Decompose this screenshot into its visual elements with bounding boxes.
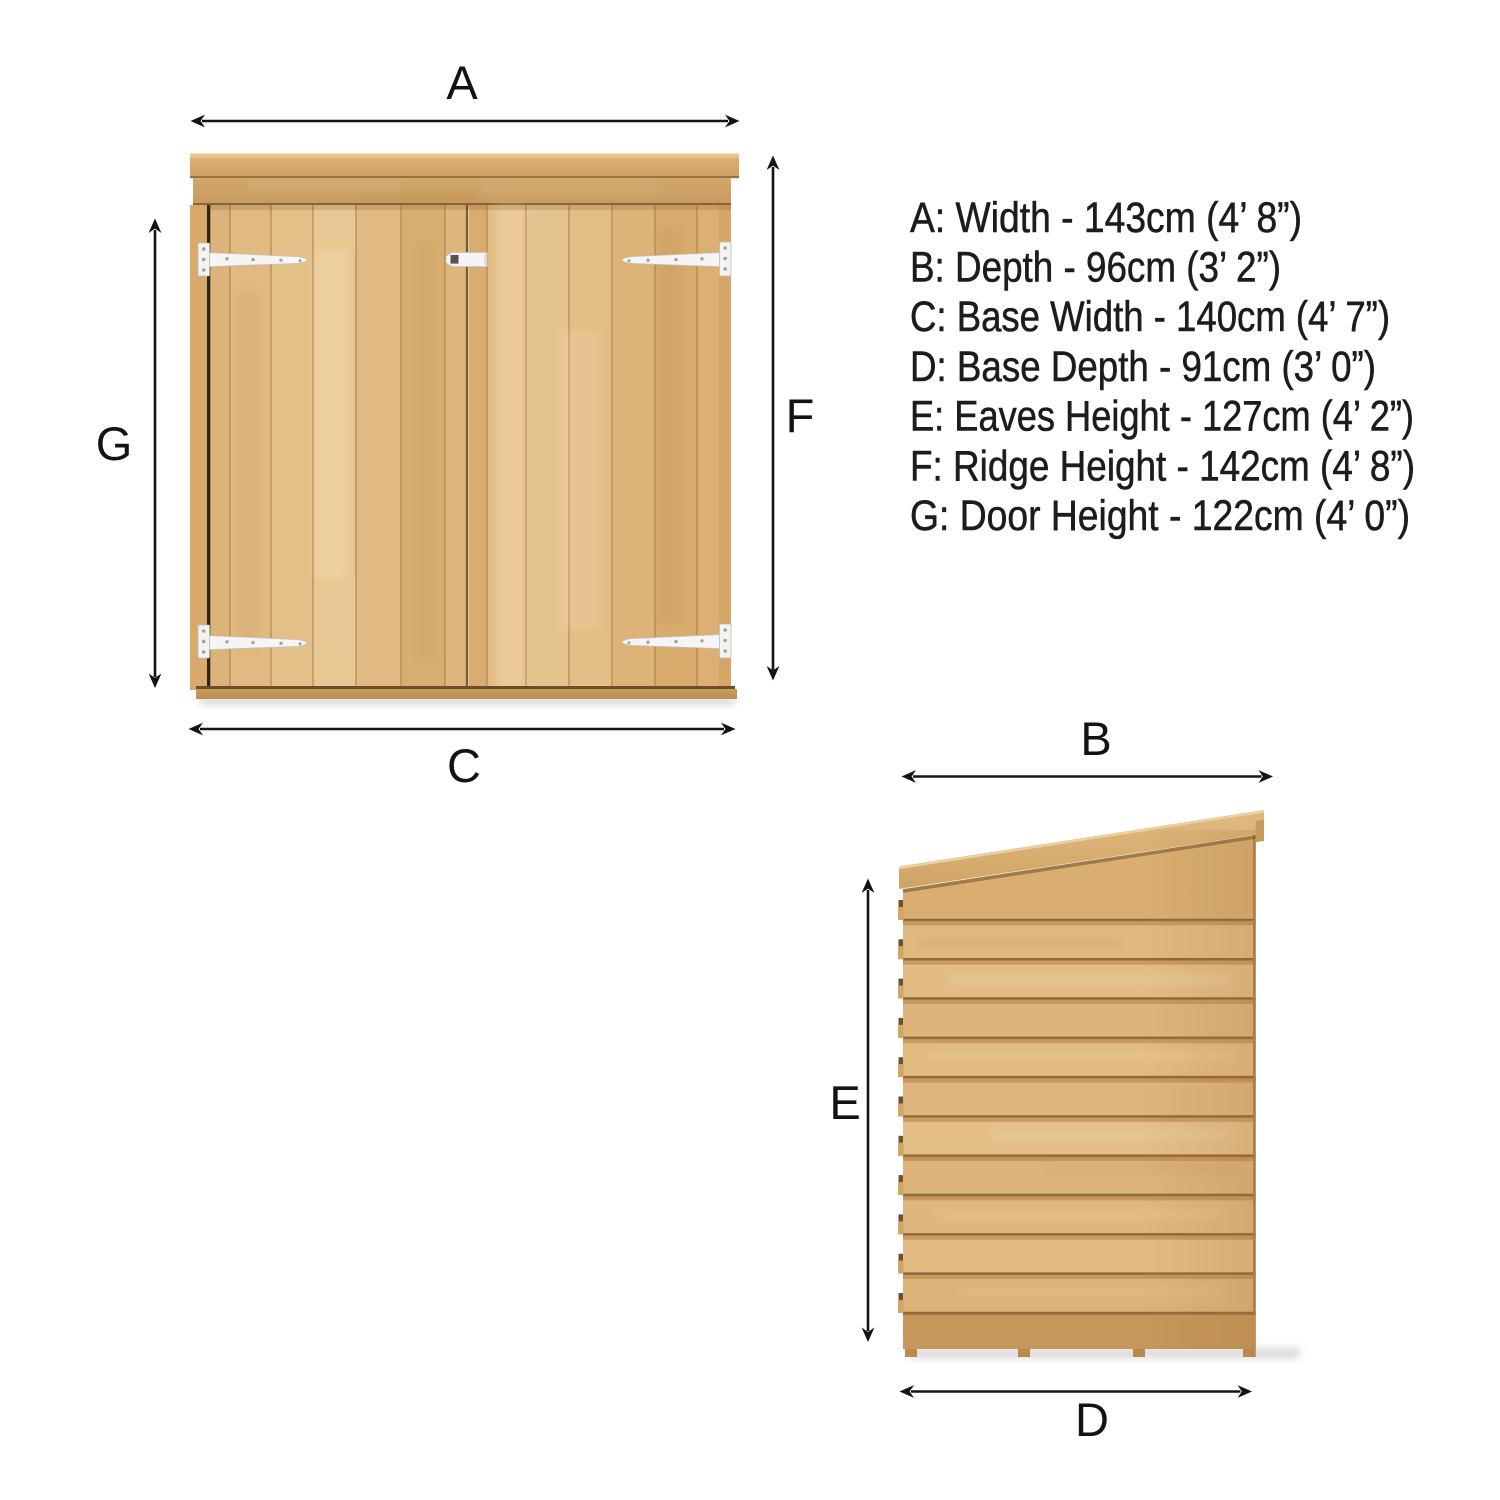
svg-text:G: G bbox=[96, 417, 133, 470]
svg-text:A: A bbox=[446, 56, 478, 109]
svg-text:A: Width - 143cm (4’ 8”): A: Width - 143cm (4’ 8”) bbox=[910, 195, 1302, 242]
svg-text:C: C bbox=[447, 739, 481, 792]
svg-text:F: F bbox=[786, 389, 815, 442]
svg-text:E: E bbox=[829, 1076, 860, 1129]
svg-text:F: Ridge Height - 142cm (4’ 8”: F: Ridge Height - 142cm (4’ 8”) bbox=[910, 443, 1415, 490]
svg-text:B: B bbox=[1080, 712, 1111, 765]
svg-text:E: Eaves Height - 127cm (4’ 2”: E: Eaves Height - 127cm (4’ 2”) bbox=[910, 394, 1414, 441]
svg-text:G: Door Height - 122cm (4’ 0”): G: Door Height - 122cm (4’ 0”) bbox=[910, 493, 1410, 540]
svg-text:C: Base Width - 140cm (4’ 7”): C: Base Width - 140cm (4’ 7”) bbox=[910, 294, 1390, 341]
svg-text:D: Base Depth - 91cm (3’ 0”): D: Base Depth - 91cm (3’ 0”) bbox=[910, 344, 1376, 391]
svg-text:D: D bbox=[1075, 1393, 1109, 1446]
svg-text:B: Depth - 96cm (3’ 2”): B: Depth - 96cm (3’ 2”) bbox=[910, 245, 1281, 292]
